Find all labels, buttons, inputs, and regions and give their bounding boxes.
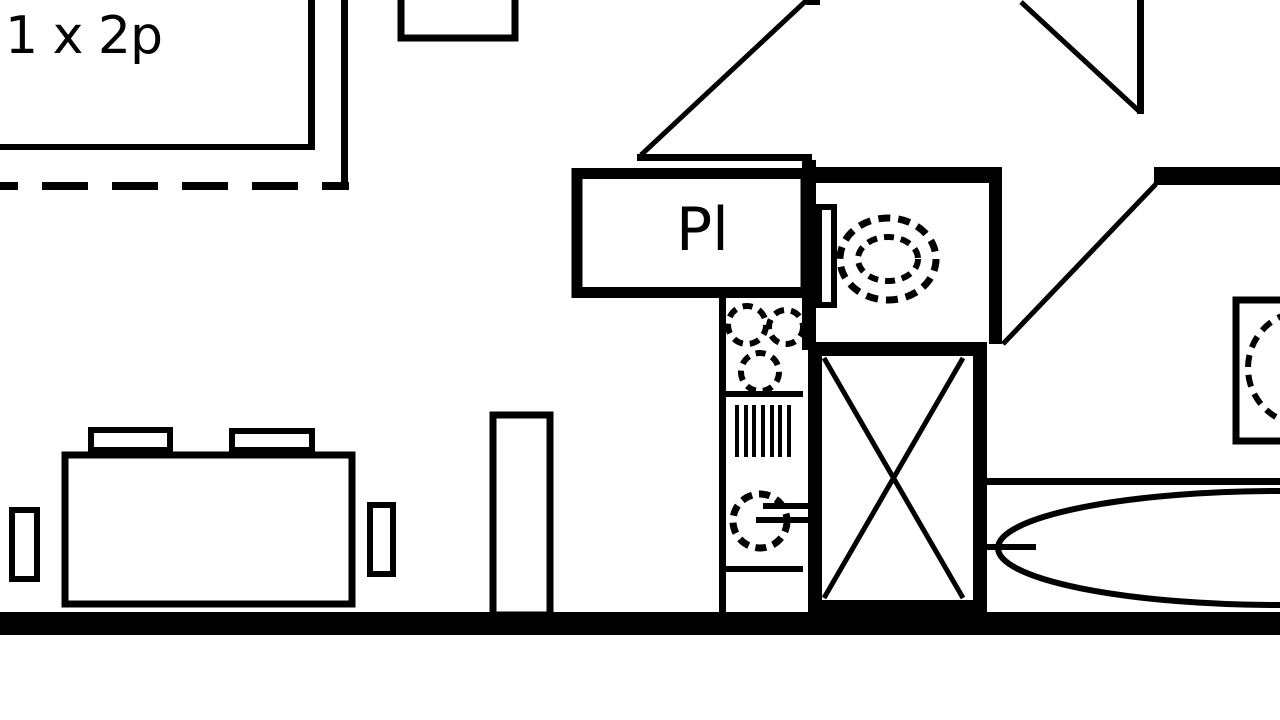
closet: Pl (577, 174, 806, 293)
grill-line (778, 405, 782, 457)
sink-faucet-line-2 (756, 517, 812, 523)
bathtub-faucet-line (984, 544, 1036, 550)
bathtub-icon (983, 478, 1280, 605)
unit-capacity-label: 1 x 2p (5, 6, 162, 66)
top-wall-stub-rect (401, 0, 515, 38)
bathroom-top-wall (1154, 167, 1280, 185)
toilet-room (810, 167, 1002, 344)
kitchen-sink-icon (733, 494, 812, 548)
toilet-icon (819, 207, 936, 305)
chair-top-left (91, 430, 170, 450)
toilet-tank (819, 207, 834, 305)
kitchen-block (719, 298, 812, 614)
bathtub-basin (998, 491, 1280, 605)
floor-plan: 1 x 2p Pl (0, 0, 1280, 720)
door-hinge-dot (806, 0, 820, 5)
grill-line (744, 405, 748, 457)
entry-door-leaf (1137, 0, 1144, 114)
closet-label: Pl (676, 195, 729, 265)
stove-burners-icon (728, 306, 803, 391)
dining-set (12, 430, 393, 604)
stove-burner (769, 310, 803, 344)
washbasin-counter (1236, 300, 1280, 441)
terrace-room: 1 x 2p (0, 0, 349, 189)
door-swing-leaf (641, 0, 809, 155)
chair-right (370, 505, 393, 574)
grill-line (770, 405, 774, 457)
toilet-room-side-wall (989, 167, 1002, 344)
door-header-line (637, 154, 812, 161)
toilet-bowl-inner (858, 237, 918, 281)
stove-burner (728, 306, 766, 344)
chair-left (12, 510, 37, 579)
kitchen-counter-divider-2 (721, 566, 803, 572)
washbasin-icon (1236, 300, 1280, 441)
terrace-side-wall-outer (341, 0, 348, 189)
terrace-side-wall-inner (308, 0, 315, 150)
bathroom-door-swing (1003, 184, 1156, 344)
floor-plan-drawing: 1 x 2p Pl (0, 0, 1280, 720)
entry-door-swing (1021, 2, 1140, 112)
washbasin-bowl (1248, 311, 1280, 425)
drainer-grill-icon (735, 405, 791, 457)
terrace-front-wall (0, 144, 312, 150)
kitchen-counter-divider-1 (721, 391, 803, 397)
grill-line (787, 405, 791, 457)
grill-line (761, 405, 765, 457)
toilet-room-top-wall (810, 167, 1002, 183)
sink-faucet-line-1 (763, 503, 810, 509)
grill-line (735, 405, 739, 457)
entry-door (1021, 0, 1144, 114)
toilet-bowl-outer (840, 218, 936, 300)
grill-line (752, 405, 756, 457)
bathtub-deck-line (983, 478, 1280, 485)
stove-burner (741, 353, 779, 391)
bottom-exterior-wall (0, 612, 1280, 635)
dining-table (65, 455, 352, 604)
counter-partition (493, 415, 550, 615)
closet-door (637, 0, 820, 161)
chair-top-right (232, 431, 312, 450)
shower-crossed-box (815, 349, 980, 607)
